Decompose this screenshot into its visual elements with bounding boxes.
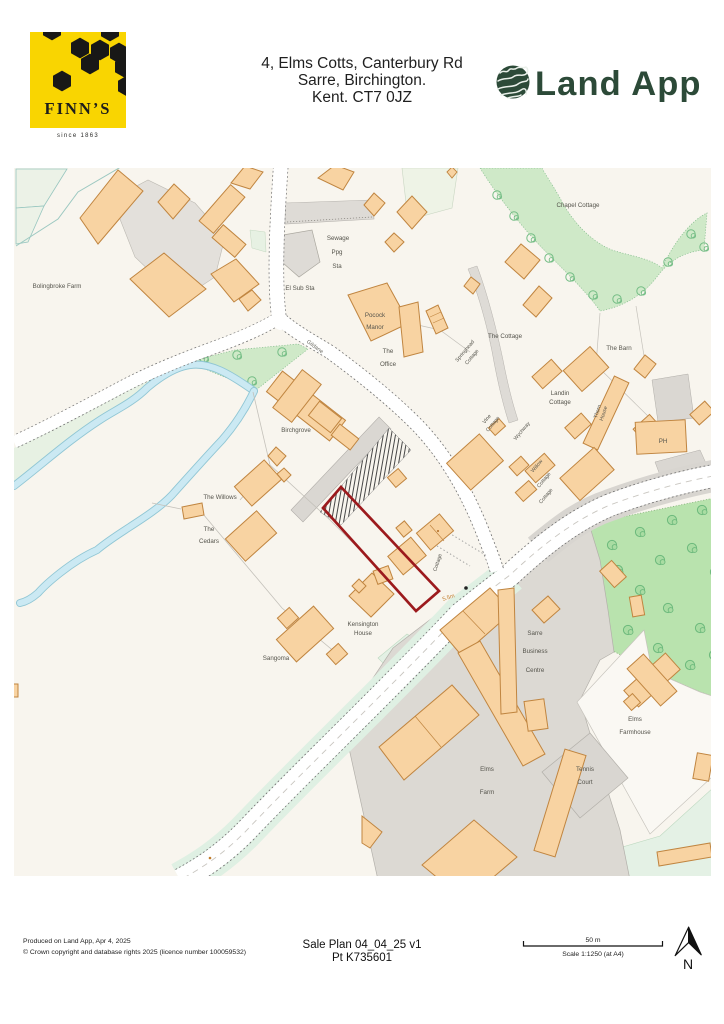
svg-text:Cedars: Cedars [199,538,219,545]
svg-text:Elms: Elms [628,716,642,723]
svg-text:PH: PH [659,438,668,445]
svg-text:House: House [354,630,372,637]
svg-text:Landin: Landin [551,390,570,397]
svg-text:Sewage: Sewage [327,235,350,242]
svg-text:Office: Office [380,361,397,368]
svg-text:FINN’S: FINN’S [44,99,111,118]
svg-text:Court: Court [577,779,592,786]
svg-text:The: The [204,526,215,533]
svg-text:Centre: Centre [526,667,545,674]
svg-text:Pocock: Pocock [365,312,386,319]
svg-text:Bolingbroke Farm: Bolingbroke Farm [33,283,82,290]
svg-text:© Crown copyright and database: © Crown copyright and database rights 20… [23,948,246,956]
svg-text:The: The [383,348,394,355]
svg-text:Farm: Farm [480,789,494,796]
svg-text:Pt K735601: Pt K735601 [332,952,392,964]
svg-text:The Barn: The Barn [606,345,632,352]
svg-text:Sarre: Sarre [527,630,543,637]
svg-text:Elms: Elms [480,766,494,773]
svg-text:Manor: Manor [366,324,384,331]
svg-text:Land App: Land App [535,65,702,103]
svg-text:Kent. CT7 0JZ: Kent. CT7 0JZ [312,89,412,106]
svg-text:Business: Business [522,648,547,655]
svg-text:Sta: Sta [332,263,342,270]
svg-text:Birchgrove: Birchgrove [281,427,311,434]
svg-text:N: N [683,956,693,972]
svg-text:Chapel Cottage: Chapel Cottage [557,202,601,209]
svg-text:4, Elms Cotts, Canterbury Rd: 4, Elms Cotts, Canterbury Rd [261,55,463,72]
svg-text:Kensington: Kensington [348,621,380,628]
svg-text:Ppg: Ppg [331,249,343,256]
svg-text:The Cottage: The Cottage [488,333,523,340]
svg-text:Sangoma: Sangoma [263,655,290,662]
svg-text:Cottage: Cottage [549,399,571,406]
svg-text:Sale Plan 04_04_25 v1: Sale Plan 04_04_25 v1 [303,939,422,951]
svg-text:Farmhouse: Farmhouse [619,729,651,736]
svg-text:The Willows: The Willows [203,494,236,501]
svg-text:El Sub Sta: El Sub Sta [285,285,315,292]
svg-text:Produced on Land App, Apr 4, 2: Produced on Land App, Apr 4, 2025 [23,938,131,945]
svg-text:Sarre, Birchington.: Sarre, Birchington. [298,72,426,89]
svg-text:50 m: 50 m [585,937,600,944]
svg-text:Scale 1:1250 (at A4): Scale 1:1250 (at A4) [562,951,624,958]
svg-text:since 1863: since 1863 [57,133,99,139]
svg-text:Tennis: Tennis [576,766,594,773]
